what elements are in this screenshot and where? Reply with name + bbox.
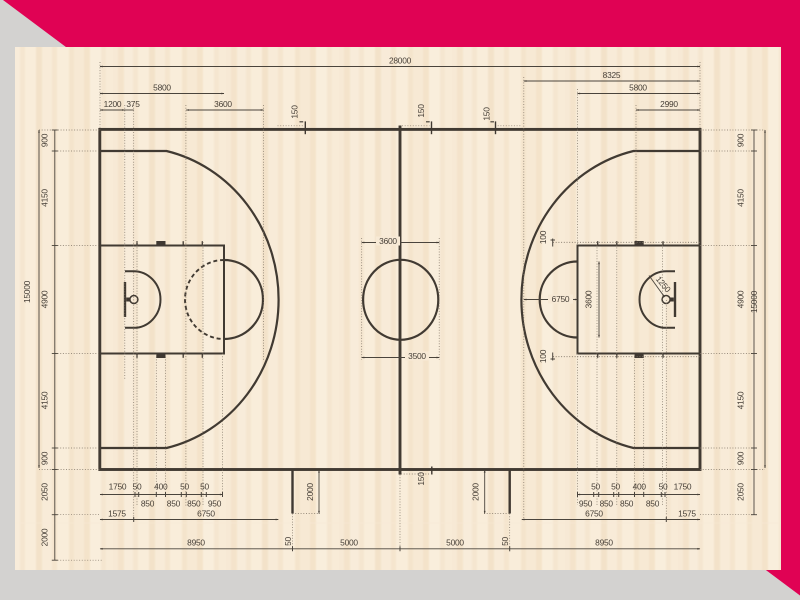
svg-text:850: 850: [620, 499, 634, 509]
svg-text:150: 150: [416, 104, 426, 118]
svg-text:900: 900: [40, 133, 50, 147]
svg-text:4900: 4900: [736, 290, 746, 308]
svg-text:850: 850: [600, 499, 614, 509]
svg-text:1750: 1750: [109, 482, 127, 492]
svg-text:4150: 4150: [40, 391, 50, 409]
svg-text:150: 150: [482, 107, 492, 121]
svg-text:3500: 3500: [408, 351, 426, 361]
svg-text:2990: 2990: [660, 99, 678, 109]
svg-text:100: 100: [538, 230, 548, 244]
svg-text:2000: 2000: [40, 528, 50, 546]
svg-text:5800: 5800: [629, 83, 647, 93]
svg-text:4150: 4150: [736, 189, 746, 207]
svg-text:50: 50: [180, 482, 189, 492]
svg-text:4900: 4900: [40, 290, 50, 308]
svg-text:950: 950: [579, 499, 593, 509]
svg-text:8950: 8950: [187, 538, 205, 548]
svg-text:900: 900: [40, 451, 50, 465]
svg-text:150: 150: [290, 105, 300, 119]
svg-text:5800: 5800: [153, 83, 171, 93]
svg-text:4150: 4150: [40, 189, 50, 207]
svg-text:375: 375: [126, 99, 140, 109]
svg-text:4150: 4150: [736, 391, 746, 409]
svg-text:100: 100: [538, 349, 548, 363]
svg-text:900: 900: [736, 451, 746, 465]
svg-text:1750: 1750: [674, 482, 692, 492]
svg-text:850: 850: [141, 499, 155, 509]
svg-text:3600: 3600: [379, 236, 397, 246]
svg-text:5000: 5000: [446, 538, 464, 548]
svg-text:50: 50: [500, 537, 510, 546]
svg-text:28000: 28000: [389, 56, 412, 66]
svg-text:50: 50: [283, 537, 293, 546]
svg-text:50: 50: [659, 482, 668, 492]
svg-text:5000: 5000: [340, 538, 358, 548]
svg-text:1200: 1200: [104, 99, 122, 109]
svg-text:150: 150: [416, 472, 426, 486]
svg-text:2000: 2000: [471, 483, 481, 501]
svg-text:2050: 2050: [40, 483, 50, 501]
svg-text:50: 50: [200, 482, 209, 492]
svg-text:850: 850: [646, 499, 660, 509]
svg-text:2050: 2050: [736, 483, 746, 501]
svg-text:2000: 2000: [305, 483, 315, 501]
svg-text:6750: 6750: [585, 509, 603, 519]
svg-text:50: 50: [133, 482, 142, 492]
svg-text:15000: 15000: [22, 280, 32, 303]
svg-text:3600: 3600: [214, 99, 232, 109]
svg-text:950: 950: [208, 499, 222, 509]
svg-text:3600: 3600: [584, 290, 594, 308]
svg-text:1575: 1575: [108, 509, 126, 519]
svg-text:6750: 6750: [552, 294, 570, 304]
svg-text:850: 850: [167, 499, 181, 509]
svg-text:400: 400: [633, 482, 647, 492]
svg-text:850: 850: [187, 499, 201, 509]
svg-text:1575: 1575: [678, 509, 696, 519]
svg-text:50: 50: [591, 482, 600, 492]
svg-text:6750: 6750: [197, 509, 215, 519]
svg-text:8950: 8950: [595, 538, 613, 548]
svg-text:400: 400: [154, 482, 168, 492]
svg-text:8325: 8325: [603, 70, 621, 80]
svg-text:900: 900: [736, 133, 746, 147]
svg-text:50: 50: [611, 482, 620, 492]
